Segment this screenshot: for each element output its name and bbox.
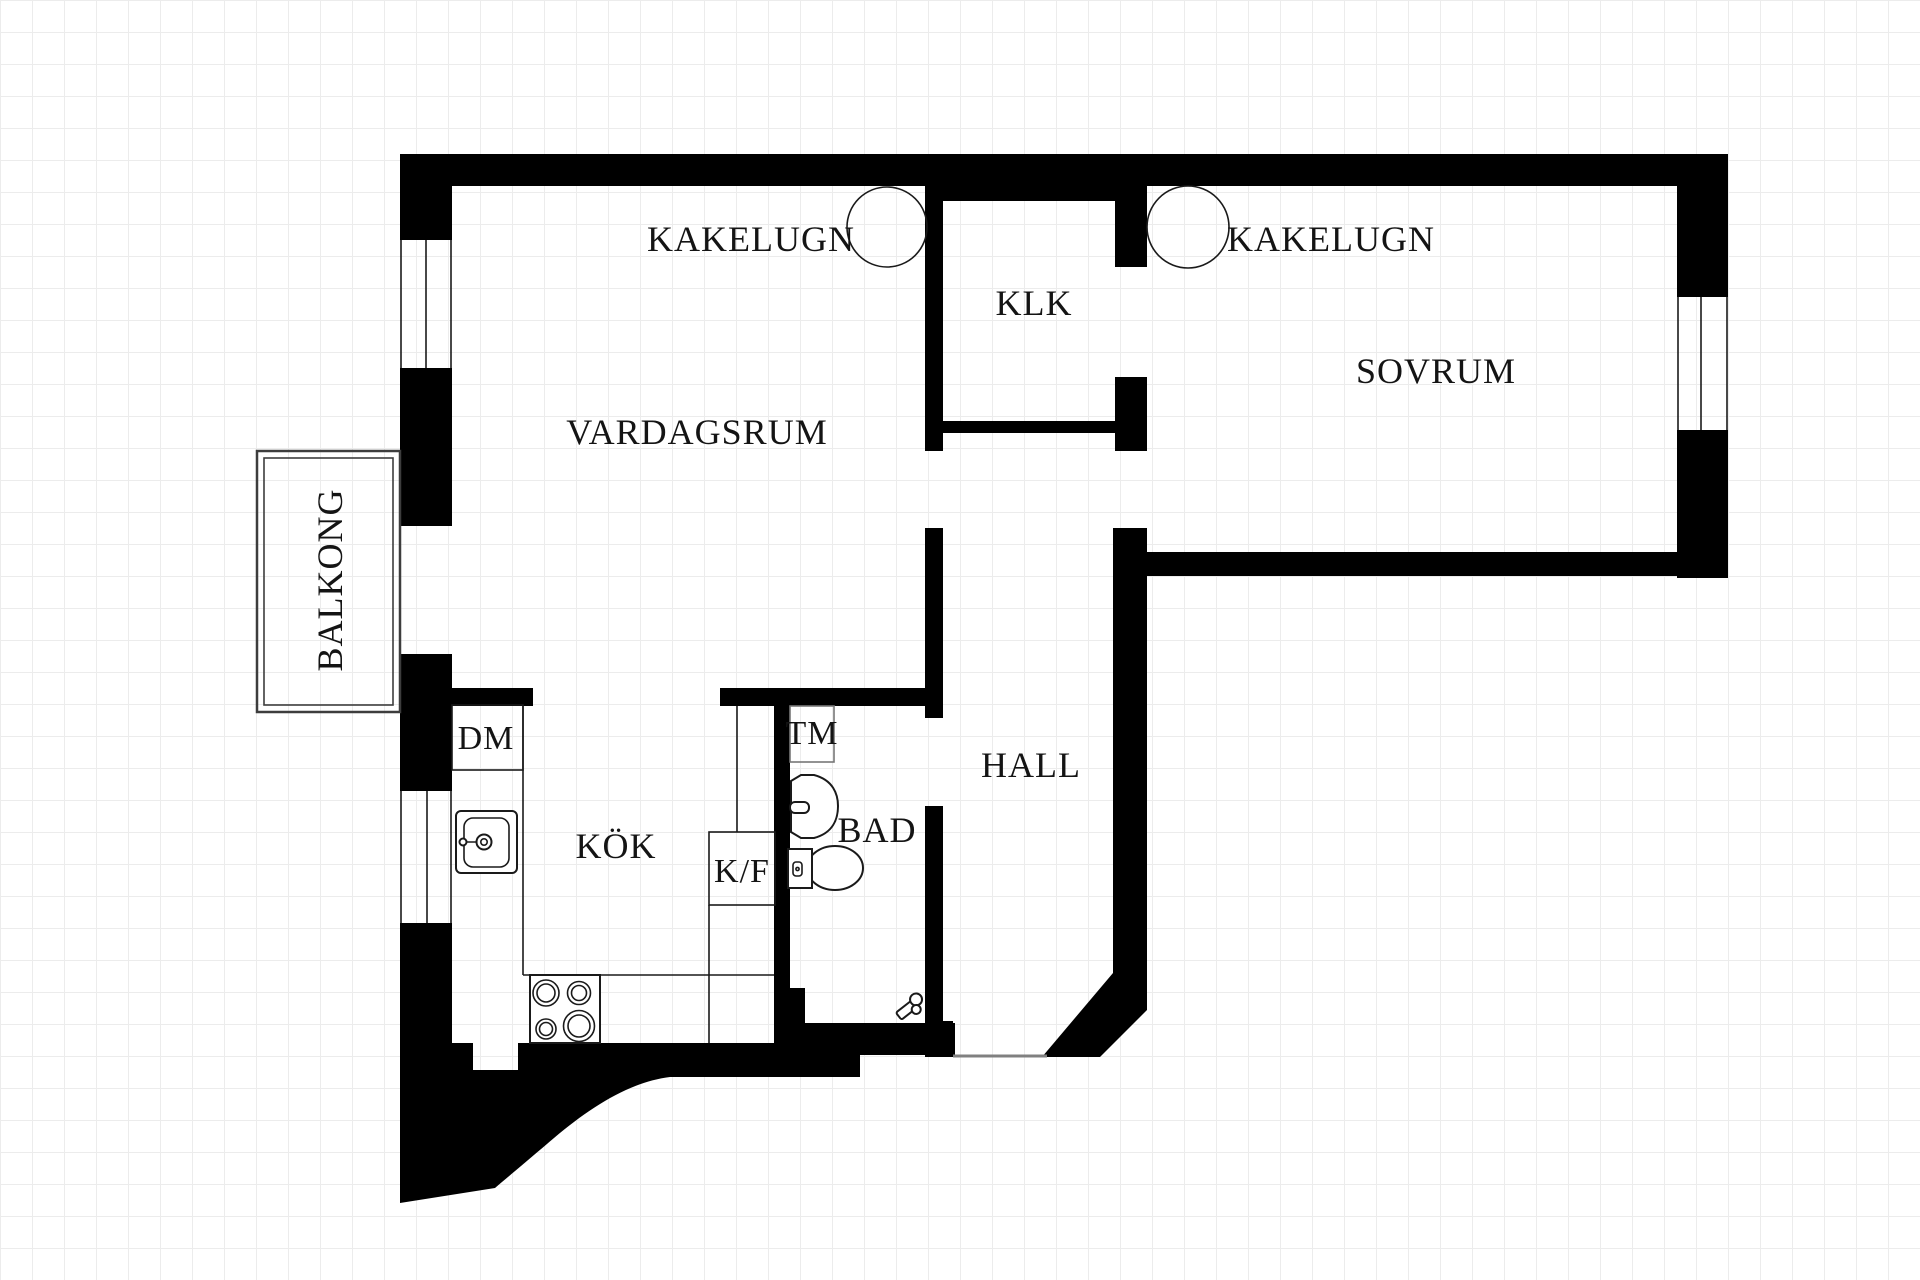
appliance-label-washing-machine: TM [786, 717, 839, 751]
wall-top [400, 154, 1728, 186]
curved-wall-southwest [400, 1070, 670, 1203]
klk-top-band [943, 186, 1115, 201]
room-label-sovrum: SOVRUM [1356, 353, 1516, 389]
kitchen-top-wall-right [720, 688, 943, 706]
wall-left-seg3 [400, 654, 452, 791]
window-right [1678, 297, 1727, 430]
klk-right-wall-lower [1115, 377, 1147, 451]
kakelugn-right-icon [1147, 186, 1229, 268]
shower-mixer-icon [893, 991, 928, 1024]
windows [401, 240, 1727, 923]
kitchen-bath-wall-step [774, 988, 805, 1023]
bathroom-fixtures [788, 706, 928, 1024]
room-label-balkong: BALKONG [312, 489, 348, 672]
window-left-lower [401, 791, 451, 923]
room-label-vardagsrum: VARDAGSRUM [566, 414, 827, 450]
wall-right-upper [1677, 154, 1728, 297]
feature-label-kakelugn-right: KAKELUGN [1227, 221, 1435, 257]
interior-walls [450, 186, 1728, 1077]
sovrum-bottom-wall [1113, 552, 1728, 576]
entry-chamfer-wall [1042, 973, 1147, 1057]
klk-bottom-wall [925, 421, 1147, 433]
window-left-upper [401, 240, 451, 368]
feature-label-kakelugn-left: KAKELUGN [647, 221, 855, 257]
room-label-bad: BAD [837, 812, 916, 848]
floorplan-drawing [0, 0, 1920, 1280]
vardagsrum-hall-wall [925, 528, 943, 718]
kitchen-bottom-wall-left [452, 1043, 473, 1077]
appliance-label-dishwasher: DM [458, 722, 515, 756]
toilet-icon [788, 846, 863, 890]
room-label-hall: HALL [981, 747, 1081, 783]
hall-right-wall [1113, 528, 1147, 973]
kitchen-bottom-wall-right [518, 1043, 860, 1077]
room-label-kok: KÖK [576, 828, 657, 864]
kakelugn-left-icon [847, 187, 927, 267]
wall-left-seg4 [400, 923, 452, 1077]
wall-left-seg1 [400, 154, 452, 240]
bad-hall-wall-lower [925, 806, 943, 1023]
kitchen-top-wall-left [450, 688, 533, 706]
kitchen-sink-icon [456, 811, 517, 873]
floorplan-canvas: VARDAGSRUM SOVRUM KLK KÖK BAD HALL BALKO… [0, 0, 1920, 1280]
bath-bottom-corner [925, 1021, 953, 1057]
klk-right-wall-upper [1115, 186, 1147, 267]
wall-left-seg2 [400, 368, 452, 526]
stove-burners-icon [530, 975, 600, 1043]
bath-sink-icon [790, 775, 838, 838]
room-label-klk: KLK [996, 285, 1073, 321]
appliance-label-fridge-freezer: K/F [714, 855, 770, 889]
